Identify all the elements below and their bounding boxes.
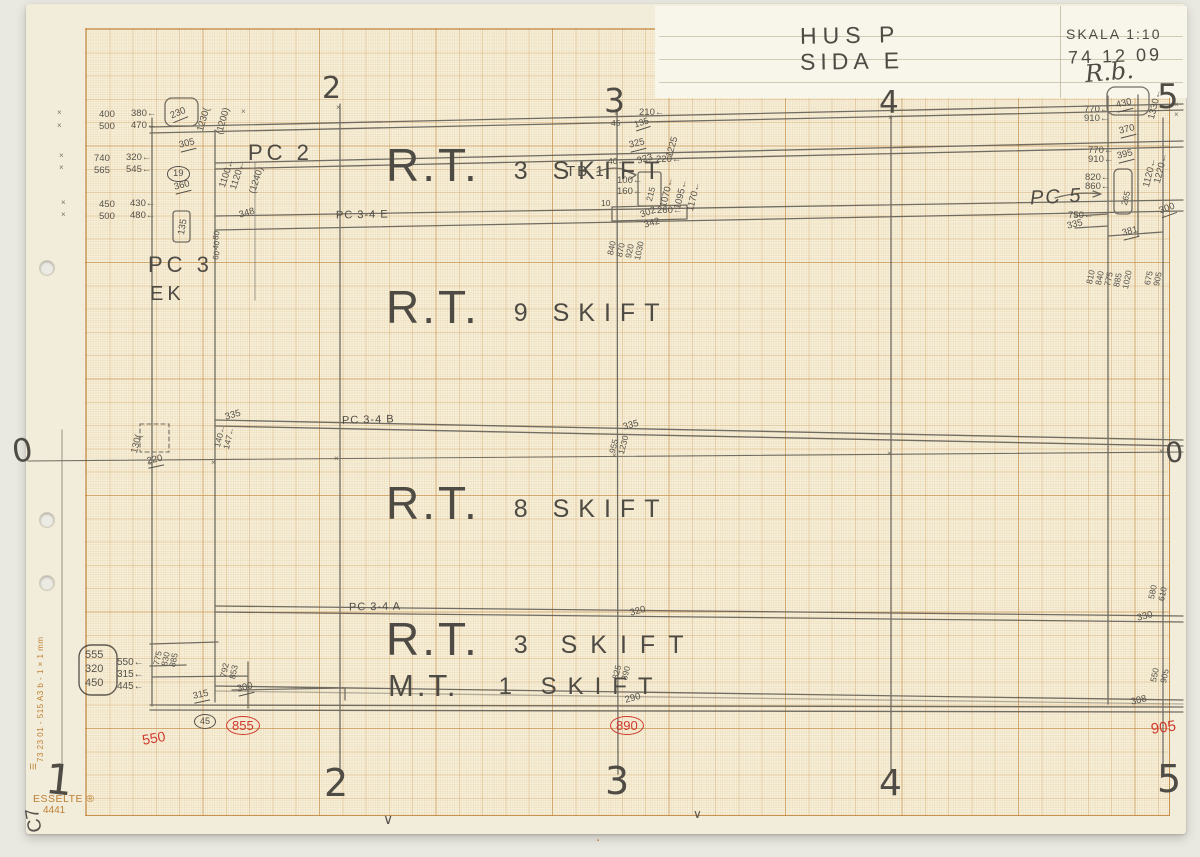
component-label-tb1: TB 1 <box>566 163 606 180</box>
component-label-ek: EK <box>150 283 185 306</box>
component-label-pc5: PC 5 <box>1029 185 1083 211</box>
sheet-side-label: SIDA E <box>800 47 905 76</box>
paper-brand: ESSELTE ® <box>33 793 95 805</box>
paper-product-number: 4441 <box>43 805 65 816</box>
zone-label-rt-3skift-top: R.T. 3 SKIFT <box>386 138 668 192</box>
zone-main: R.T. <box>386 476 480 530</box>
zone-sub: 3 SKIFT <box>514 631 697 660</box>
corner-pencil-mark: C7 <box>22 806 48 834</box>
zone-main: R.T. <box>386 612 480 666</box>
zone-main: M.T. <box>388 668 459 704</box>
zone-sub: 8 SKIFT <box>514 495 669 524</box>
zone-main: R.T. <box>386 280 480 334</box>
punch-hole <box>40 576 54 590</box>
paper-margin-code: 73 23 01 - 515 A3 b - 1 × 1 mm <box>36 636 45 762</box>
zone-main: R.T. <box>386 138 480 192</box>
zone-sub: 1 SKIFT <box>499 673 664 701</box>
component-label-pc34b: PC 3-4 B <box>342 413 395 426</box>
title-block: HUS P SIDA E SKALA 1:10 74 12 09 R.b. <box>655 6 1187 98</box>
project-title: HUS P <box>800 21 901 50</box>
edge-mark: ▪ <box>597 838 599 844</box>
component-label-pc34e: PC 3-4 E <box>336 209 389 222</box>
zone-label-rt-9skift: R.T. 9 SKIFT <box>386 280 668 334</box>
component-label-pc34a: PC 3-4 A <box>349 601 401 614</box>
scale-label: SKALA 1:10 <box>1066 26 1162 42</box>
punch-hole <box>40 513 54 527</box>
zone-label-rt-3skift-bottom: R.T. 3 SKIFT <box>386 612 696 666</box>
component-label-pc2: PC 2 <box>248 140 313 166</box>
zone-label-mt-1skift: M.T. 1 SKIFT <box>388 668 664 704</box>
zone-sub: 9 SKIFT <box>514 299 669 328</box>
component-label-pc3: PC 3 <box>148 252 213 278</box>
punch-hole <box>40 261 54 275</box>
scanned-drawing-page: HUS P SIDA E SKALA 1:10 74 12 09 R.b. <box>0 0 1200 857</box>
zone-label-rt-8skift: R.T. 8 SKIFT <box>386 476 668 530</box>
titleblock-divider <box>1060 6 1061 98</box>
signature: R.b. <box>1084 56 1135 88</box>
